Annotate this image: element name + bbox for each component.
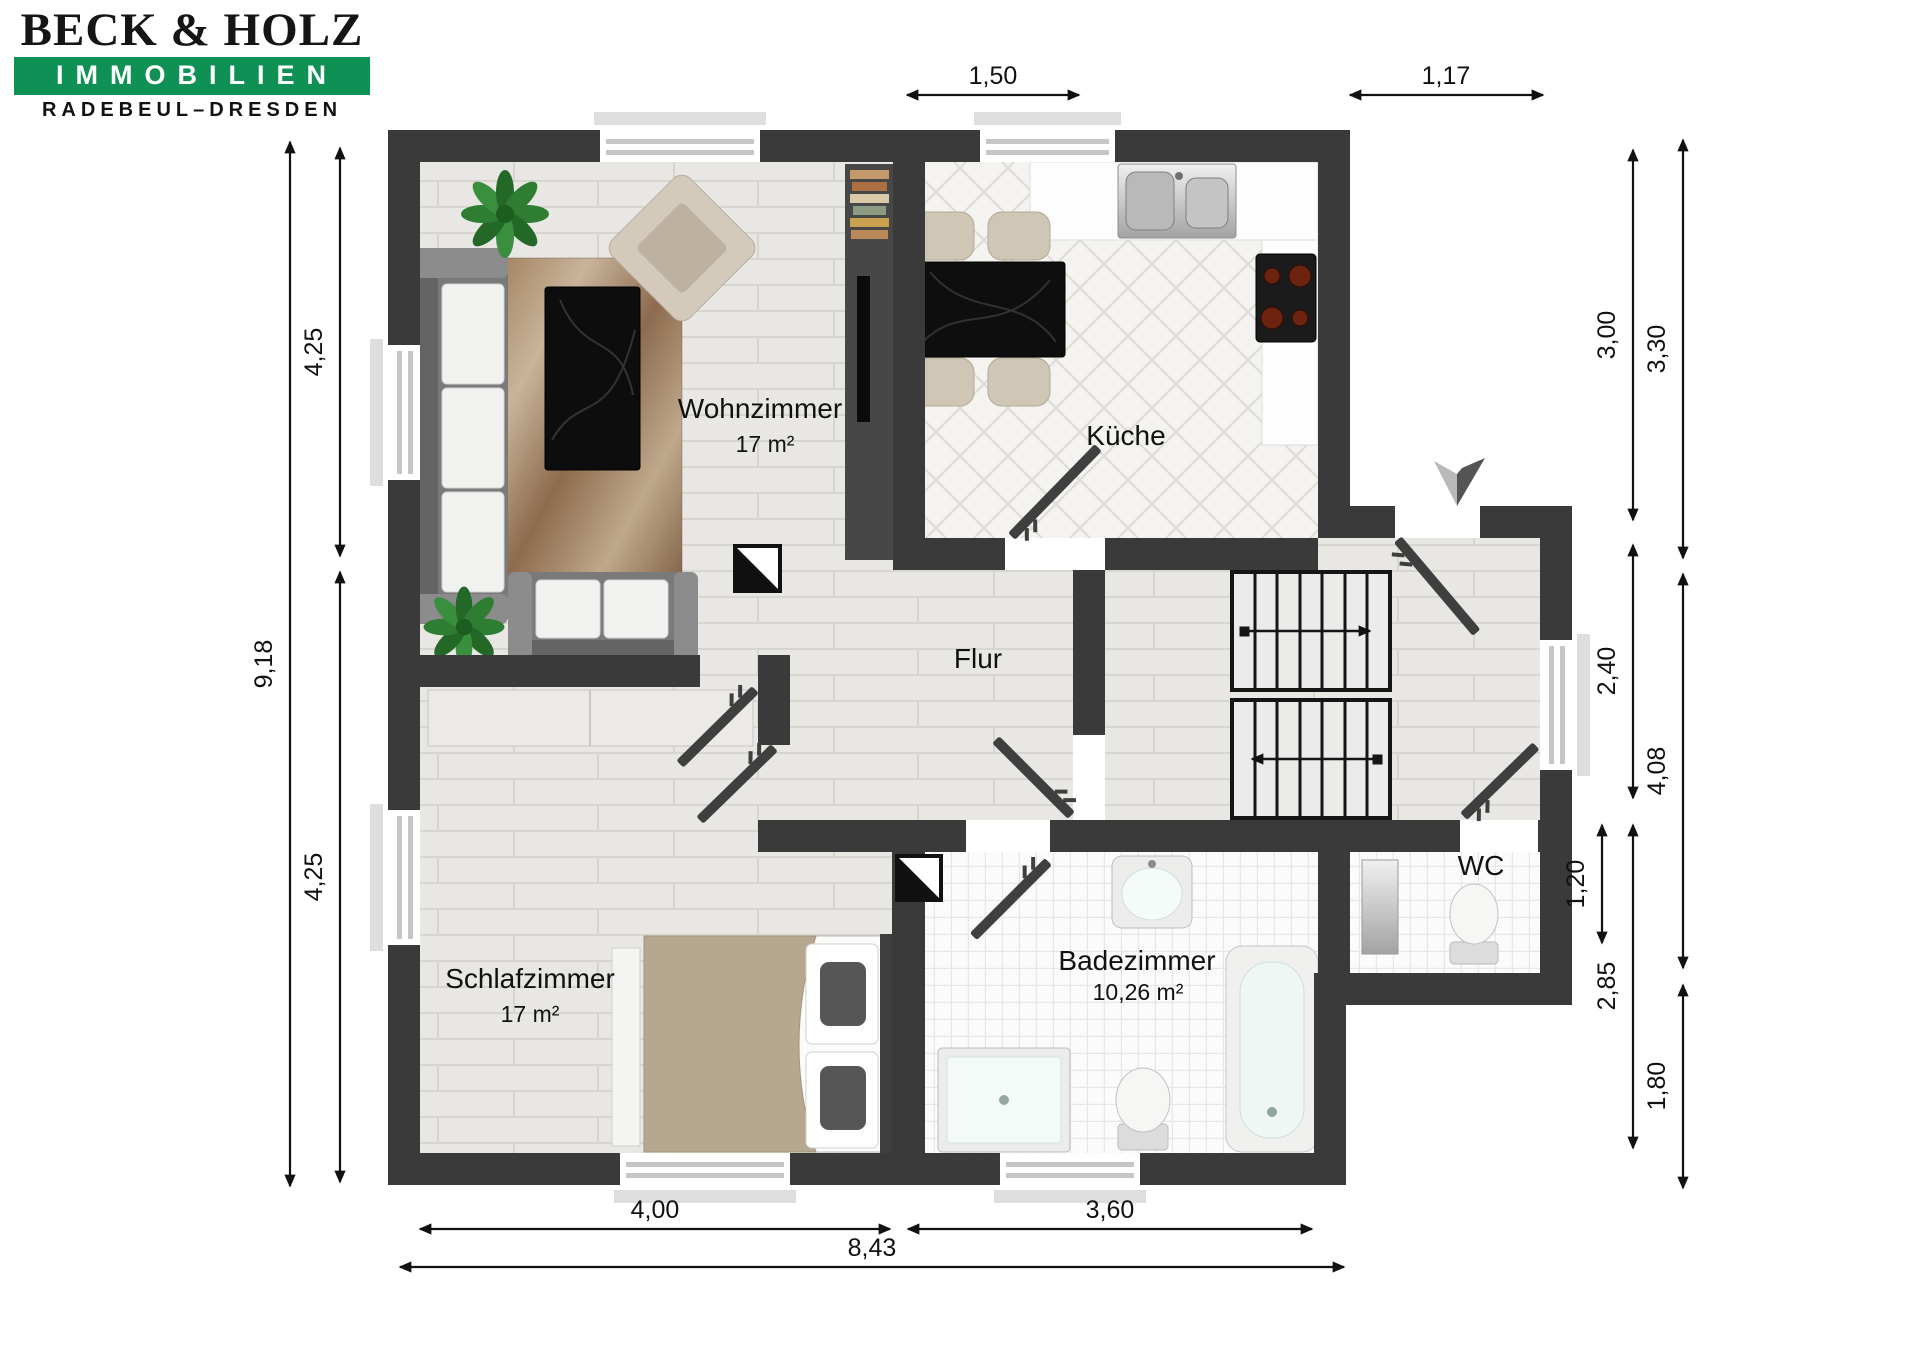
tv-cabinet — [845, 164, 893, 560]
wall-left — [388, 130, 420, 1185]
svg-text:8,43: 8,43 — [848, 1234, 897, 1262]
level-change-icon — [897, 856, 941, 900]
svg-text:1,50: 1,50 — [969, 62, 1018, 90]
label-badezimmer: Badezimmer — [1058, 945, 1215, 976]
bath-sink — [1112, 856, 1192, 928]
svg-text:1,20: 1,20 — [1562, 860, 1590, 909]
north-arrow-icon — [1434, 458, 1485, 506]
dimension-right-1-80: 1,80 — [1643, 985, 1683, 1188]
toilet — [1116, 1068, 1170, 1150]
window — [1540, 634, 1590, 776]
wall-schlafzimmer-flur-stub — [758, 820, 892, 852]
label-kueche: Küche — [1086, 420, 1165, 451]
pillow — [820, 1066, 866, 1130]
svg-text:9,18: 9,18 — [250, 640, 278, 689]
svg-text:4,00: 4,00 — [631, 1196, 680, 1224]
label-flur: Flur — [954, 643, 1002, 674]
floor-plan-drawing: Wohnzimmer 17 m² Küche Flur Schlafzimmer… — [0, 0, 1920, 1357]
svg-text:4,25: 4,25 — [300, 328, 328, 377]
svg-text:3,30: 3,30 — [1643, 325, 1671, 374]
shower — [938, 1048, 1070, 1152]
window — [594, 112, 766, 162]
wc-radiator — [1362, 860, 1398, 954]
label-badezimmer-area: 10,26 m² — [1093, 979, 1184, 1005]
label-wc: WC — [1458, 850, 1505, 881]
dimension-right-3-30: 3,30 — [1643, 140, 1683, 558]
dimension-top-1: 1,50 — [907, 62, 1079, 95]
svg-text:1,17: 1,17 — [1422, 62, 1471, 90]
floor-plan-page: Wohnzimmer 17 m² Küche Flur Schlafzimmer… — [0, 0, 1920, 1357]
svg-text:3,00: 3,00 — [1593, 311, 1621, 360]
label-wohnzimmer-area: 17 m² — [736, 431, 795, 457]
stair-flight-up — [1232, 572, 1390, 690]
svg-text:2,85: 2,85 — [1593, 962, 1621, 1011]
wall-kitchen-right — [1318, 130, 1350, 538]
logo-city: RADEBEUL–DRESDEN — [14, 99, 370, 122]
label-schlafzimmer: Schlafzimmer — [445, 963, 615, 994]
svg-text:4,08: 4,08 — [1643, 747, 1671, 796]
bathtub — [1226, 946, 1318, 1152]
wall-wohnzimmer-kueche — [893, 130, 925, 560]
dimension-right-2-85: 2,85 — [1593, 825, 1633, 1148]
svg-text:1,80: 1,80 — [1643, 1062, 1671, 1111]
company-logo: BECK & HOLZ IMMOBILIEN RADEBEUL–DRESDEN — [14, 6, 370, 122]
dimension-right-3-00: 3,00 — [1593, 150, 1633, 520]
dimension-bottom-3-60: 3,60 — [908, 1196, 1312, 1229]
kitchen-sink — [1118, 164, 1236, 238]
wall-wohnzimmer-schlafzimmer — [420, 655, 700, 687]
sofa — [414, 248, 508, 624]
dimension-right-2-40: 2,40 — [1593, 545, 1633, 798]
label-schlafzimmer-area: 17 m² — [501, 1001, 560, 1027]
window — [974, 112, 1121, 162]
window — [370, 339, 420, 486]
wc-toilet — [1450, 884, 1498, 964]
level-change-icon — [735, 546, 780, 591]
wall-bottom — [388, 1153, 1346, 1185]
bed-bench — [612, 948, 640, 1146]
window — [370, 804, 420, 951]
label-wohnzimmer: Wohnzimmer — [678, 393, 842, 424]
plant-icon — [461, 170, 549, 258]
dimension-bottom-4-00: 4,00 — [420, 1196, 890, 1229]
dimension-left-total: 9,18 — [250, 142, 290, 1186]
tv-icon — [857, 276, 870, 422]
bed — [644, 934, 894, 1154]
loveseat — [508, 572, 698, 664]
dimension-left-upper: 4,25 — [300, 148, 340, 556]
dining-table — [905, 262, 1065, 357]
svg-text:3,60: 3,60 — [1086, 1196, 1135, 1224]
coffee-table — [545, 287, 640, 470]
dimension-bottom-8-43: 8,43 — [400, 1234, 1344, 1267]
stove — [1256, 254, 1316, 342]
wall-top — [388, 130, 1350, 162]
flur-entry-floor — [700, 538, 1540, 852]
wall-bad-wc — [1318, 852, 1350, 973]
wall-bath-right — [1314, 973, 1346, 1185]
svg-text:4,25: 4,25 — [300, 853, 328, 902]
wall-kueche-flur — [893, 538, 1318, 570]
dimension-right-4-08: 4,08 — [1643, 574, 1683, 968]
logo-name: BECK & HOLZ — [14, 6, 370, 55]
wall-entry-bottom — [1318, 973, 1572, 1005]
logo-division-banner: IMMOBILIEN — [14, 57, 370, 95]
svg-text:2,40: 2,40 — [1593, 647, 1621, 696]
dimension-left-lower: 4,25 — [300, 572, 340, 1182]
pillow — [820, 962, 866, 1026]
stair-flight-down — [1232, 700, 1390, 818]
dimension-top-2: 1,17 — [1350, 62, 1543, 95]
wall-schlafzimmer-flur — [758, 655, 790, 745]
